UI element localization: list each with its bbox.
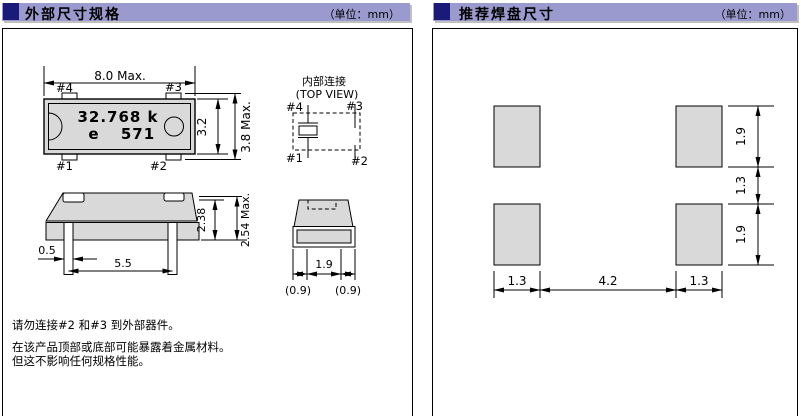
dim-pad-width-right-label: 1.3 — [689, 274, 708, 288]
datasheet-page: 外部尺寸规格 （单位：mm） 推荐焊盘尺寸 （单位：mm） — [0, 0, 801, 416]
right-section-title: 推荐焊盘尺寸 — [459, 4, 555, 24]
pad-vertical-dimensions: 1.9 1.3 1.9 — [728, 106, 774, 265]
section-bullet-icon — [434, 3, 450, 20]
lead-left — [64, 223, 73, 275]
end-view-drawing: 1.9 (0.9) (0.9) — [285, 200, 361, 298]
note-line-1: 请勿连接#2 和#3 到外部器件。 — [12, 317, 180, 333]
right-section-unit: （单位：mm） — [715, 6, 791, 22]
left-section-title: 外部尺寸规格 — [25, 4, 121, 24]
dim-total-height-label: 2.54 Max. — [239, 193, 252, 247]
base-metal — [297, 230, 351, 243]
pin4-label: #4 — [286, 100, 303, 114]
internal-connection-title: 内部连接 — [302, 74, 346, 88]
top-view-drawing: 32.768 k e 571 #4 #3 #1 #2 8.0 Max. 3.2 … — [44, 66, 253, 173]
note-line-3: 但这不影响任何规格性能。 — [12, 353, 150, 369]
pad-top-left — [494, 106, 540, 167]
left-section-header: 外部尺寸规格 （单位：mm） — [2, 3, 410, 21]
dim-pad-height-bottom-label: 1.9 — [734, 225, 748, 244]
dim-pad-gap-label: 1.3 — [734, 176, 748, 195]
internal-connection-diagram: 内部连接 (TOP VIEW) #4 #3 #1 #2 — [286, 74, 368, 168]
dim-body-height-label: 3.2 — [195, 117, 209, 136]
dim-width-label: 8.0 Max. — [94, 69, 146, 83]
section-bullet-icon — [3, 3, 19, 20]
dim-body-height-label: 2.38 — [195, 208, 208, 233]
package-end-face — [294, 200, 353, 227]
lid-notch-left — [63, 193, 84, 202]
pad-horizontal-dimensions: 1.3 4.2 1.3 — [494, 271, 722, 298]
pin1-label: #1 — [286, 151, 303, 165]
left-section-unit: （单位：mm） — [324, 6, 400, 22]
dim-pad-width-left-label: 1.3 — [507, 274, 526, 288]
dim-margin-left-label: (0.9) — [285, 284, 311, 297]
pin2-label: #2 — [150, 159, 167, 173]
pin3-label: #3 — [346, 99, 363, 113]
lid-notch-right — [164, 193, 184, 201]
pad-layout-drawing: 1.9 1.3 1.9 1.3 4.2 1.3 — [432, 28, 800, 416]
right-section-header: 推荐焊盘尺寸 （单位：mm） — [433, 3, 797, 21]
crystal-symbol — [299, 126, 317, 135]
pad-bottom-left — [494, 204, 540, 265]
pin3-label: #3 — [165, 80, 182, 94]
dim-lead-pitch-label: 5.5 — [114, 257, 132, 270]
pad-top-right — [676, 106, 722, 167]
dim-pad-pitch-label: 4.2 — [598, 274, 617, 288]
dim-pad-height-top-label: 1.9 — [734, 127, 748, 146]
dim-total-height-label: 3.8 Max. — [239, 101, 253, 153]
marking-frequency: 32.768 k — [77, 108, 158, 126]
pin1-label: #1 — [56, 159, 73, 173]
side-view-drawing: 2.38 2.54 Max. 0.5 5.5 — [38, 193, 252, 275]
pad-bottom-right — [676, 204, 722, 265]
dim-lead-span-label: 1.9 — [315, 258, 333, 271]
dim-margin-right-label: (0.9) — [335, 284, 361, 297]
lead-right — [168, 223, 177, 275]
pin2-label: #2 — [351, 154, 368, 168]
pad-pattern — [494, 106, 722, 265]
marking-code-e: e — [88, 125, 99, 143]
marking-code-num: 571 — [121, 125, 155, 143]
dim-lead-width-label: 0.5 — [38, 244, 56, 257]
